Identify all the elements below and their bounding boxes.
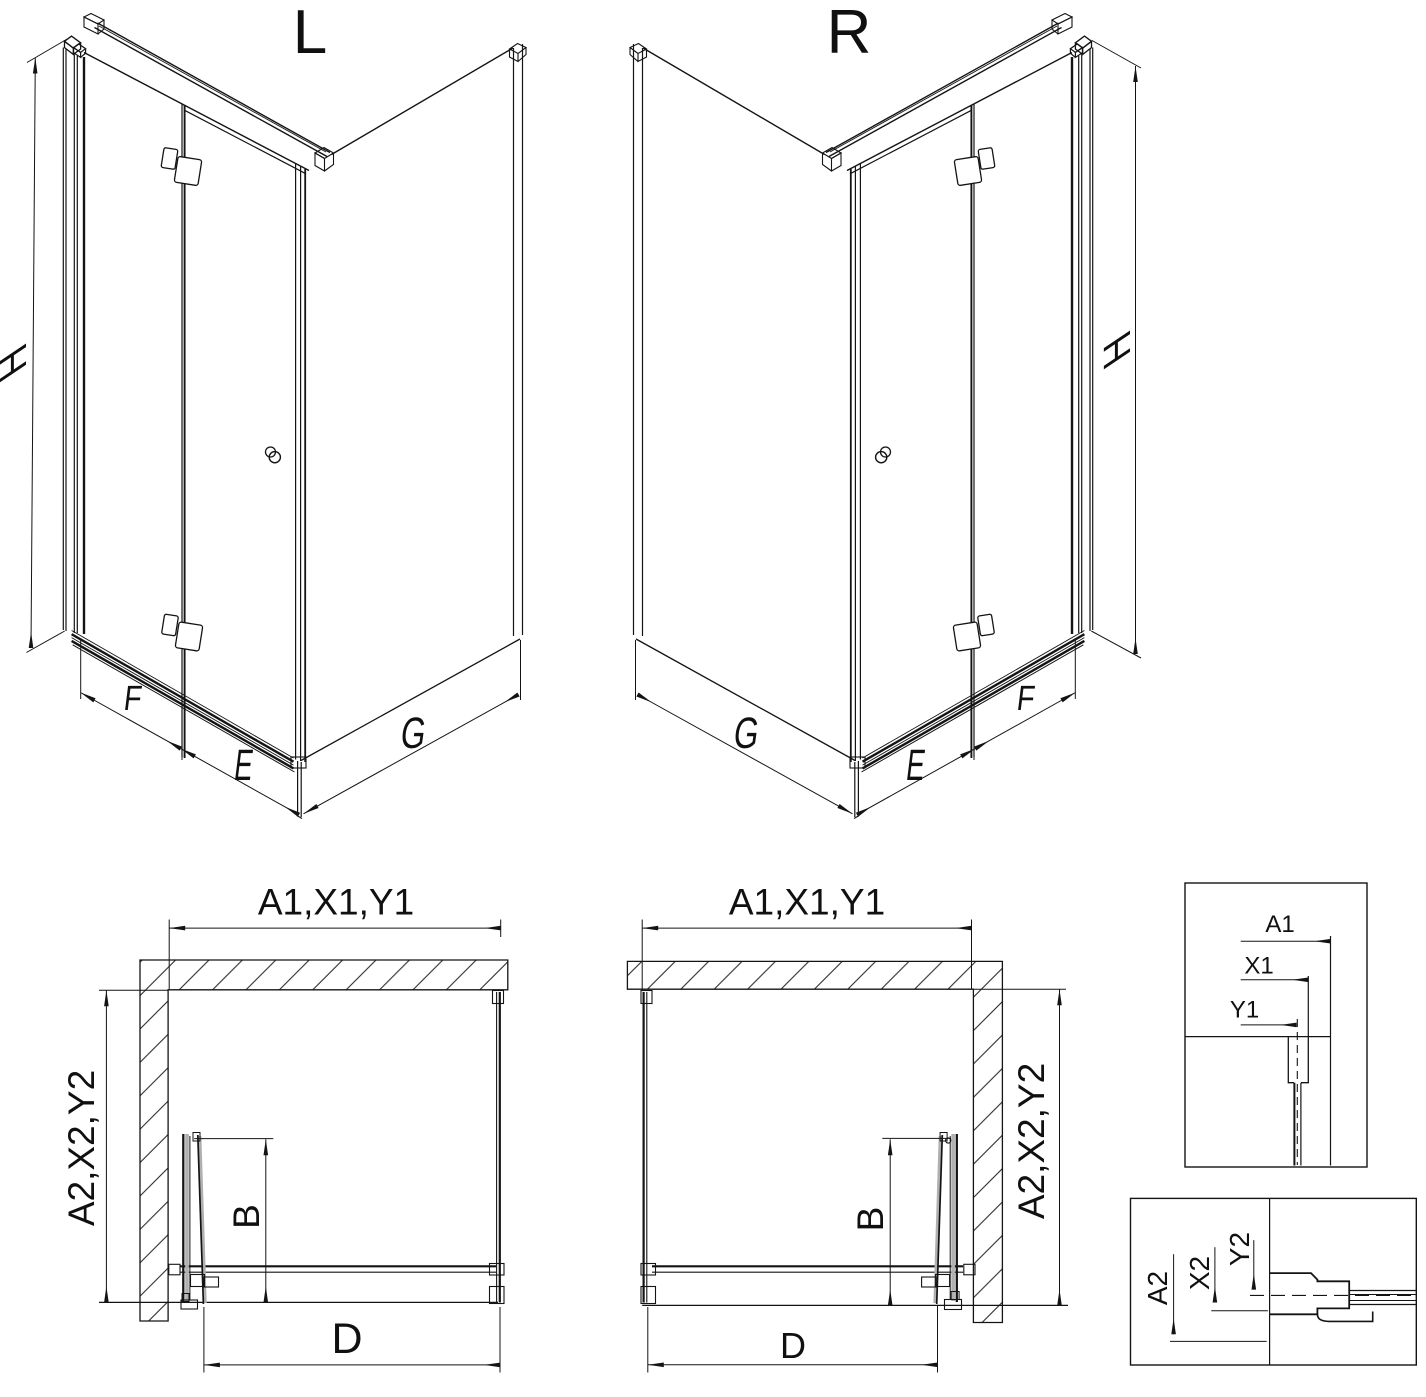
svg-text:D: D	[780, 1325, 806, 1366]
svg-text:L: L	[293, 0, 327, 67]
svg-text:A2: A2	[1142, 1271, 1173, 1305]
svg-text:X2: X2	[1184, 1256, 1215, 1290]
svg-text:Y1: Y1	[1230, 997, 1259, 1024]
svg-text:A1,X1,Y1: A1,X1,Y1	[729, 882, 885, 923]
svg-text:A1: A1	[1265, 911, 1294, 938]
svg-text:B: B	[226, 1204, 267, 1229]
svg-text:Y2: Y2	[1224, 1232, 1255, 1266]
svg-text:A2,X2,Y2: A2,X2,Y2	[61, 1070, 102, 1226]
svg-text:D: D	[331, 1315, 362, 1363]
svg-text:A2,X2,Y2: A2,X2,Y2	[1011, 1063, 1052, 1219]
svg-text:B: B	[850, 1207, 891, 1232]
svg-text:R: R	[827, 0, 872, 67]
svg-text:X1: X1	[1244, 953, 1273, 980]
svg-text:A1,X1,Y1: A1,X1,Y1	[258, 882, 414, 923]
